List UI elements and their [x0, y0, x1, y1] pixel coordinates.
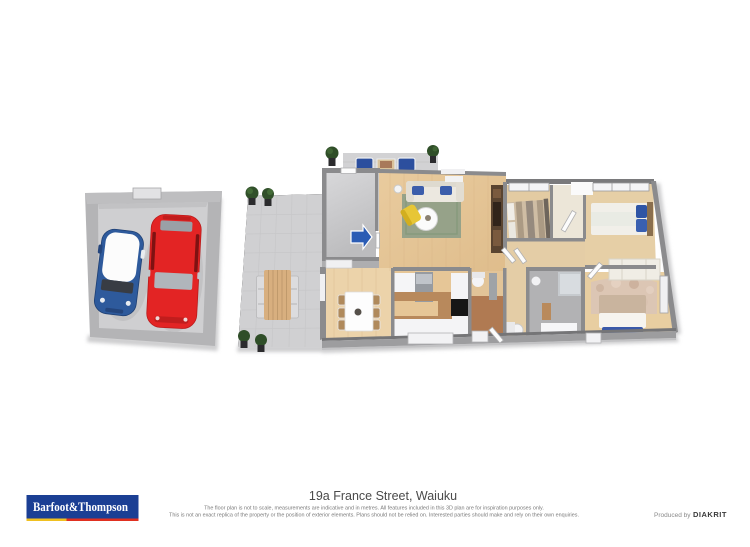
svg-text:DIAKRIT: DIAKRIT	[693, 510, 727, 519]
svg-text:The floor plan is not to scale: The floor plan is not to scale, measurem…	[204, 506, 544, 512]
svg-text:19a France Street, Waiuku: 19a France Street, Waiuku	[309, 489, 457, 503]
svg-text:Barfoot&Thompson: Barfoot&Thompson	[33, 500, 128, 514]
svg-text:This is not an exact replica o: This is not an exact replica of the prop…	[169, 513, 579, 519]
svg-text:Produced by: Produced by	[654, 512, 691, 519]
